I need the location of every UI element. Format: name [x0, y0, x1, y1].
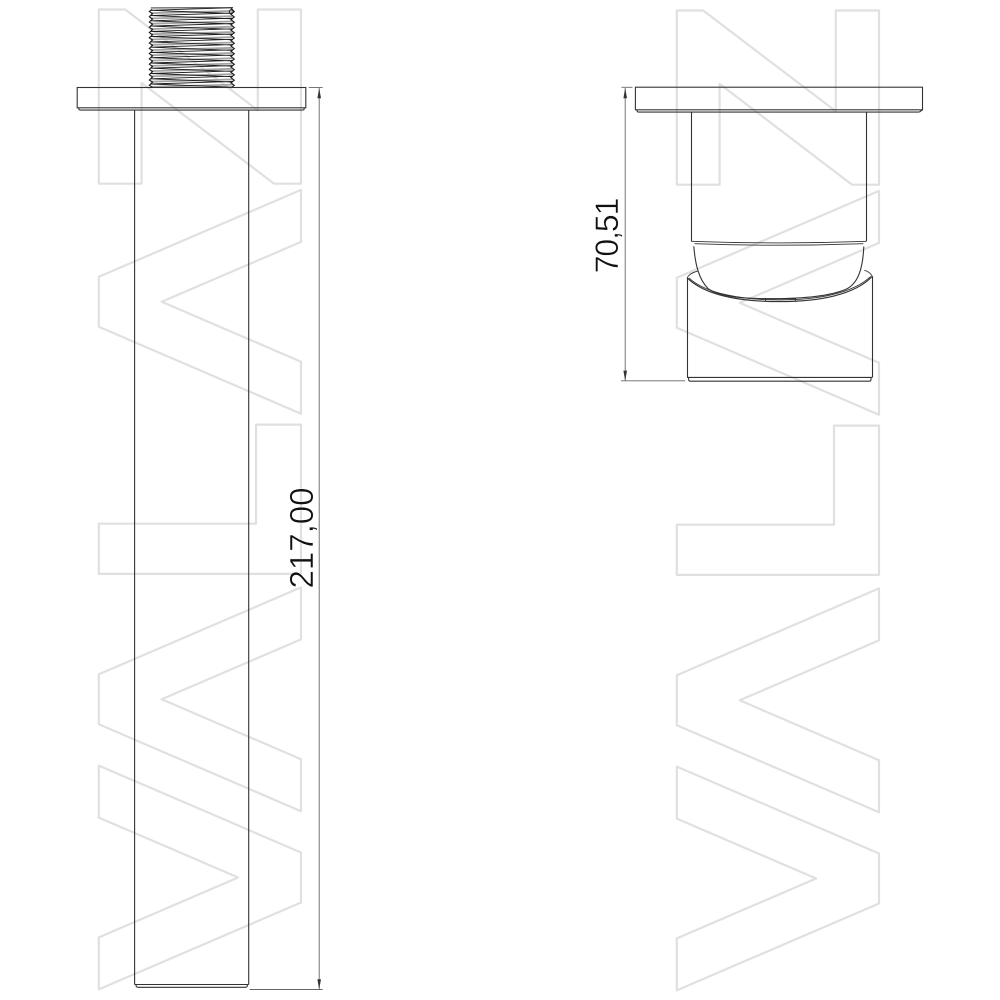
svg-text:70,51: 70,51	[589, 198, 625, 273]
svg-text:217,00: 217,00	[283, 488, 320, 589]
